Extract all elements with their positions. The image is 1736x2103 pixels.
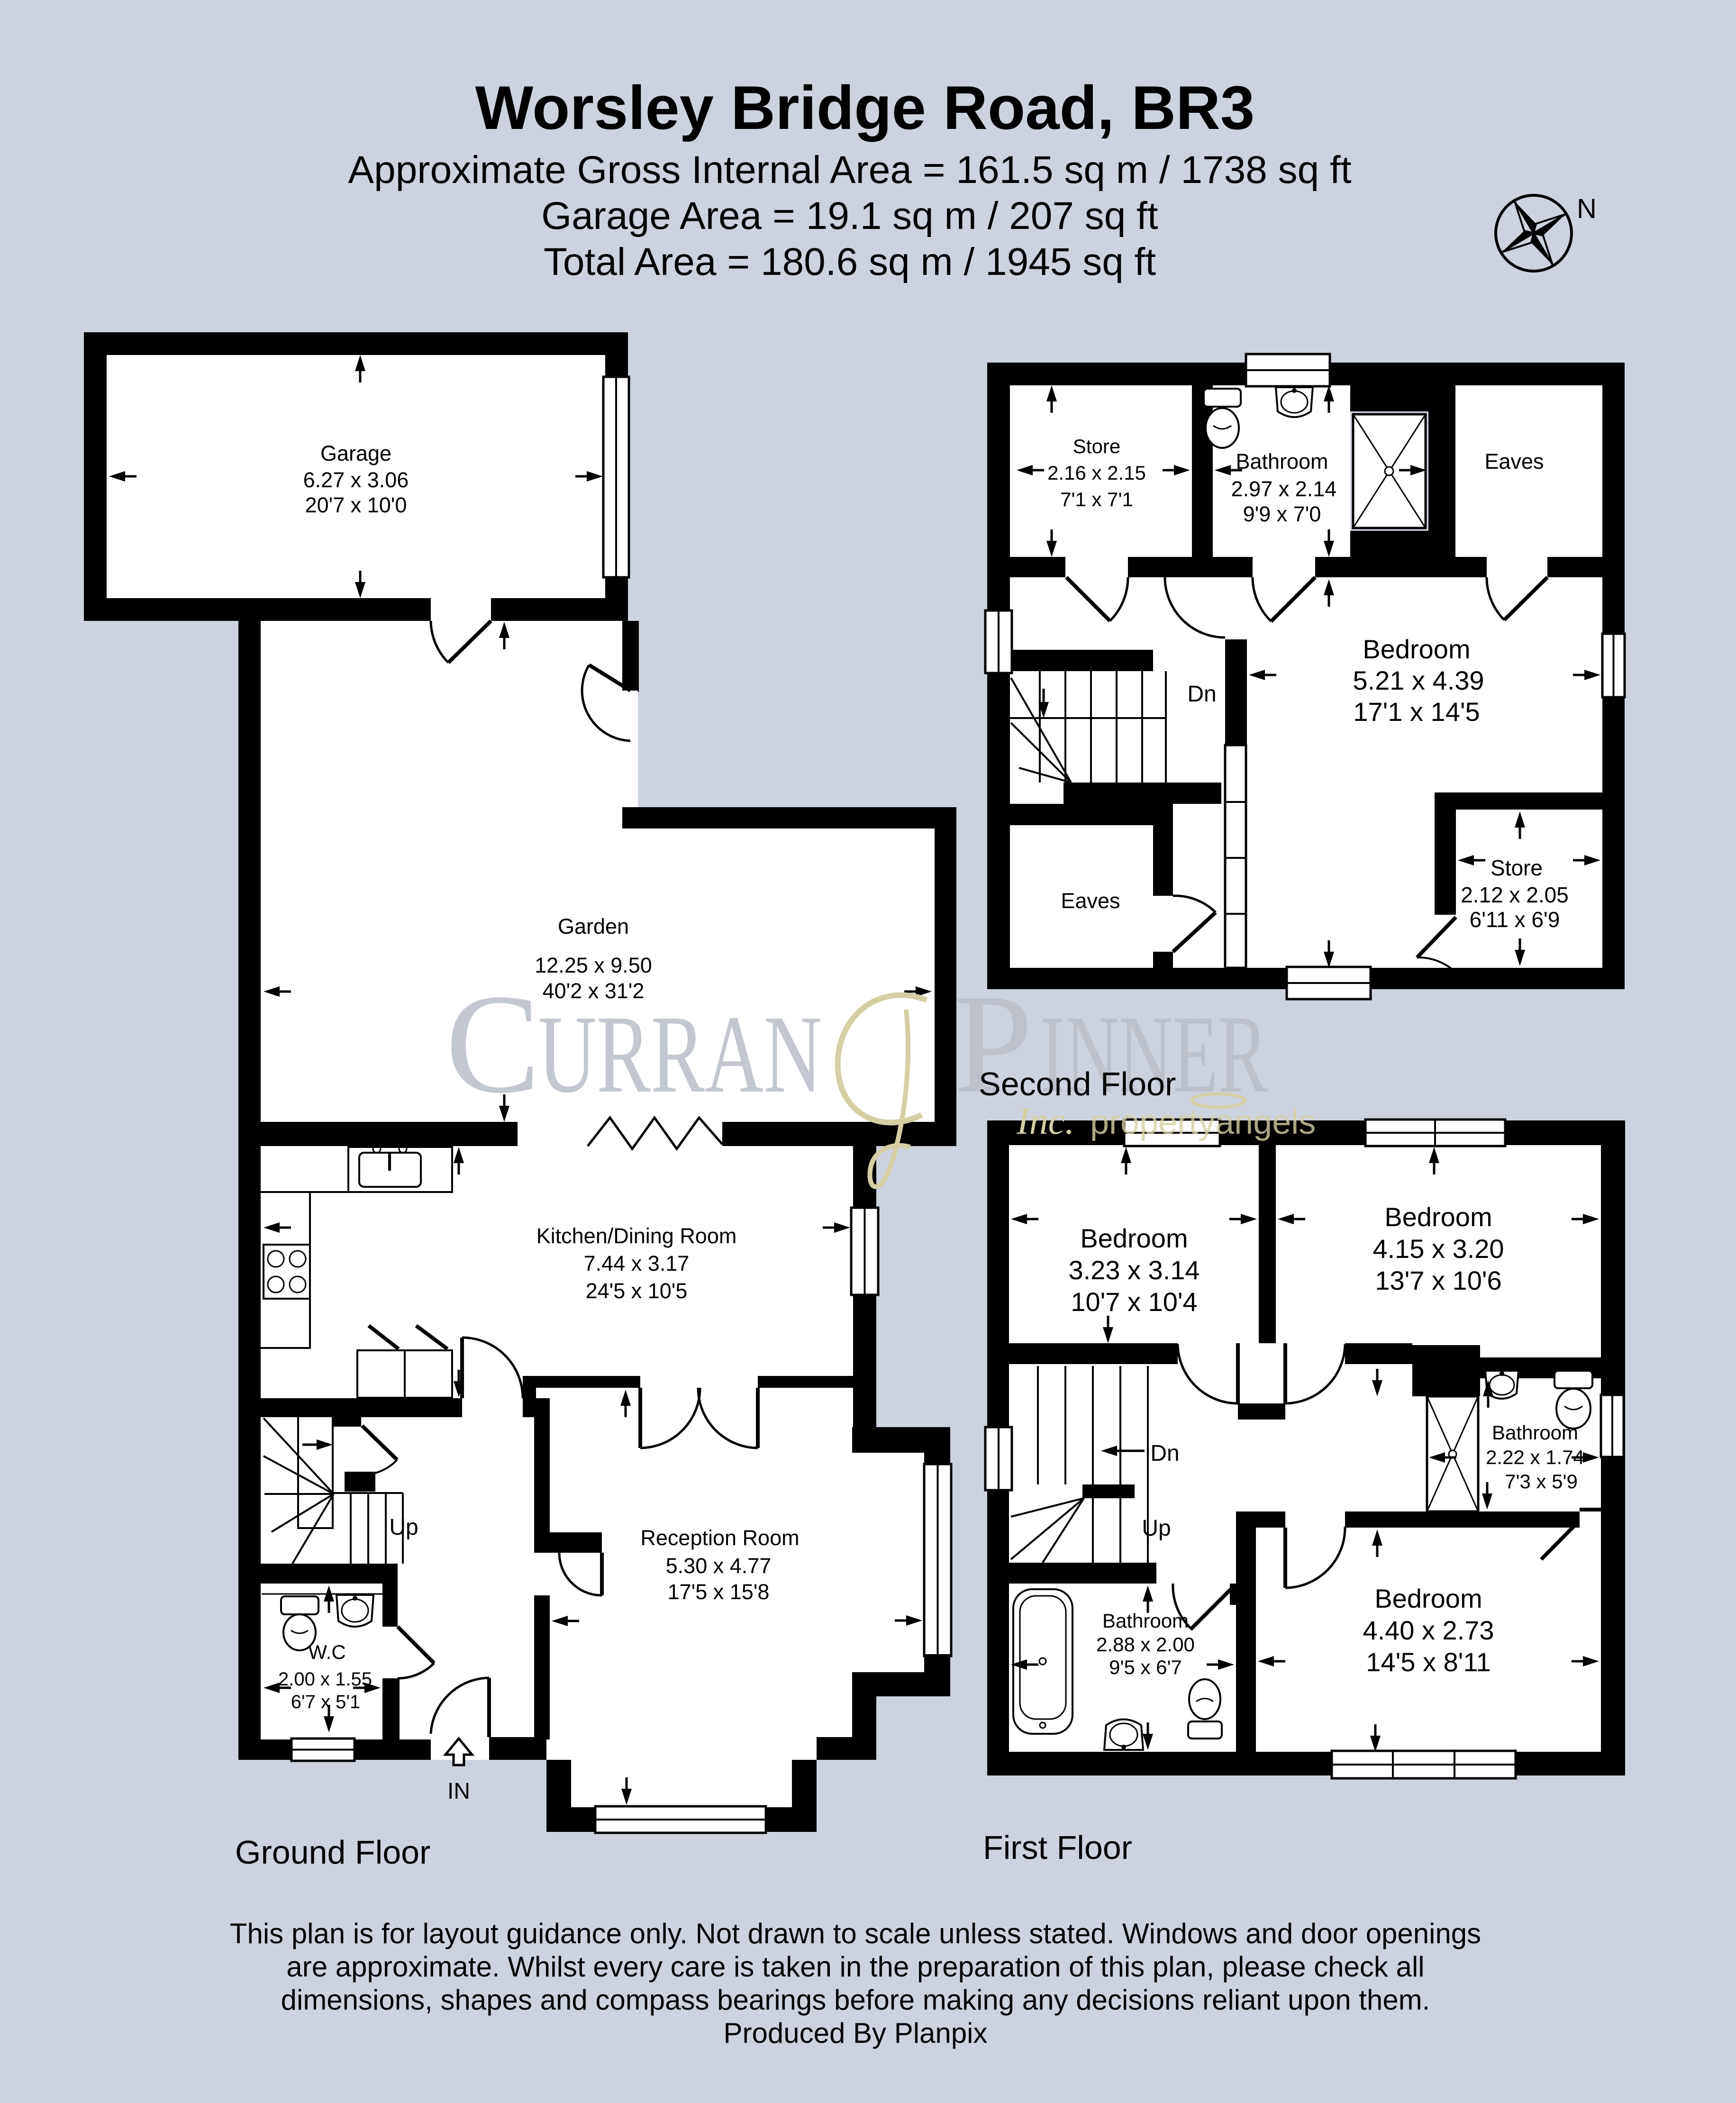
svg-text:Dn: Dn [1187, 682, 1216, 707]
svg-text:17'5 x 15'8: 17'5 x 15'8 [668, 1580, 770, 1604]
svg-text:IN: IN [447, 1779, 470, 1804]
svg-text:Eaves: Eaves [1061, 889, 1120, 913]
svg-text:Ground Floor: Ground Floor [235, 1834, 430, 1871]
svg-text:5.21 x 4.39: 5.21 x 4.39 [1353, 665, 1484, 695]
svg-text:Bathroom: Bathroom [1236, 449, 1328, 473]
svg-text:dimensions, shapes and compass: dimensions, shapes and compass bearings … [281, 1984, 1430, 2016]
svg-text:Up: Up [1142, 1516, 1171, 1541]
svg-text:10'7 x 10'4: 10'7 x 10'4 [1071, 1287, 1197, 1317]
svg-text:Garage: Garage [320, 441, 391, 465]
svg-text:12.25 x 9.50: 12.25 x 9.50 [535, 953, 652, 977]
svg-text:W.C: W.C [308, 1641, 345, 1663]
svg-text:Garden: Garden [558, 914, 629, 938]
svg-text:24'5 x 10'5: 24'5 x 10'5 [586, 1279, 688, 1303]
svg-text:2.12 x 2.05: 2.12 x 2.05 [1461, 883, 1569, 907]
svg-text:6'11 x 6'9: 6'11 x 6'9 [1470, 907, 1560, 932]
svg-text:This plan is for layout guidan: This plan is for layout guidance only. N… [230, 1918, 1481, 1949]
svg-text:2.97 x 2.14: 2.97 x 2.14 [1231, 477, 1337, 501]
svg-text:40'2 x 31'2: 40'2 x 31'2 [543, 979, 645, 1003]
svg-text:13'7 x 10'6: 13'7 x 10'6 [1375, 1265, 1501, 1295]
svg-text:Bedroom: Bedroom [1384, 1202, 1492, 1232]
svg-text:Worsley Bridge Road, BR3: Worsley Bridge Road, BR3 [475, 73, 1255, 142]
svg-text:Reception Room: Reception Room [640, 1526, 799, 1550]
svg-text:2.16 x 2.15: 2.16 x 2.15 [1047, 462, 1146, 484]
svg-text:N: N [1577, 193, 1597, 224]
svg-text:17'1 x 14'5: 17'1 x 14'5 [1353, 697, 1480, 727]
svg-text:14'5 x 8'11: 14'5 x 8'11 [1366, 1647, 1491, 1677]
svg-text:Store: Store [1073, 435, 1120, 457]
svg-text:9'5 x 6'7: 9'5 x 6'7 [1109, 1656, 1182, 1678]
svg-text:Bathroom: Bathroom [1492, 1421, 1578, 1444]
svg-text:2.88 x 2.00: 2.88 x 2.00 [1096, 1633, 1195, 1656]
svg-text:Bathroom: Bathroom [1102, 1610, 1189, 1632]
svg-text:are approximate. Whilst every: are approximate. Whilst every care is ta… [286, 1951, 1424, 1983]
svg-text:Bedroom: Bedroom [1363, 634, 1470, 664]
svg-text:7.44 x 3.17: 7.44 x 3.17 [584, 1251, 690, 1275]
svg-text:7'1 x 7'1: 7'1 x 7'1 [1060, 488, 1133, 510]
svg-text:9'9 x 7'0: 9'9 x 7'0 [1243, 502, 1321, 526]
svg-text:Eaves: Eaves [1484, 449, 1544, 473]
svg-text:7'3 x 5'9: 7'3 x 5'9 [1505, 1470, 1578, 1493]
svg-text:4.15 x 3.20: 4.15 x 3.20 [1372, 1234, 1504, 1264]
svg-text:Dn: Dn [1150, 1441, 1179, 1466]
svg-text:6'7 x 5'1: 6'7 x 5'1 [291, 1692, 360, 1712]
svg-text:URRAN: URRAN [538, 992, 822, 1116]
svg-text:Second Floor: Second Floor [979, 1065, 1176, 1102]
svg-text:Up: Up [389, 1515, 418, 1540]
svg-text:First Floor: First Floor [983, 1829, 1132, 1866]
svg-text:Produced By Planpix: Produced By Planpix [724, 2017, 988, 2049]
svg-text:2.22 x 1.74: 2.22 x 1.74 [1486, 1446, 1584, 1468]
svg-text:2.00 x 1.55: 2.00 x 1.55 [278, 1669, 372, 1690]
svg-text:6.27 x 3.06: 6.27 x 3.06 [303, 468, 409, 492]
svg-text:C: C [445, 965, 540, 1122]
svg-text:Store: Store [1491, 856, 1543, 880]
svg-text:Bedroom: Bedroom [1374, 1584, 1482, 1613]
svg-text:3.23 x 3.14: 3.23 x 3.14 [1068, 1255, 1200, 1285]
svg-text:5.30 x 4.77: 5.30 x 4.77 [666, 1554, 772, 1578]
svg-text:Kitchen/Dining Room: Kitchen/Dining Room [536, 1224, 737, 1248]
svg-text:Approximate Gross Internal Are: Approximate Gross Internal Area = 161.5 … [348, 148, 1351, 191]
svg-text:Bedroom: Bedroom [1080, 1223, 1188, 1253]
svg-text:propertyangels: propertyangels [1090, 1103, 1316, 1141]
svg-text:Total Area = 180.6 sq m / 1945: Total Area = 180.6 sq m / 1945 sq ft [544, 240, 1156, 283]
svg-text:Garage Area = 19.1 sq m / 207: Garage Area = 19.1 sq m / 207 sq ft [541, 194, 1158, 237]
svg-text:20'7 x 10'0: 20'7 x 10'0 [305, 493, 407, 517]
svg-text:Inc.: Inc. [1016, 1101, 1074, 1142]
svg-text:4.40 x 2.73: 4.40 x 2.73 [1363, 1615, 1494, 1645]
